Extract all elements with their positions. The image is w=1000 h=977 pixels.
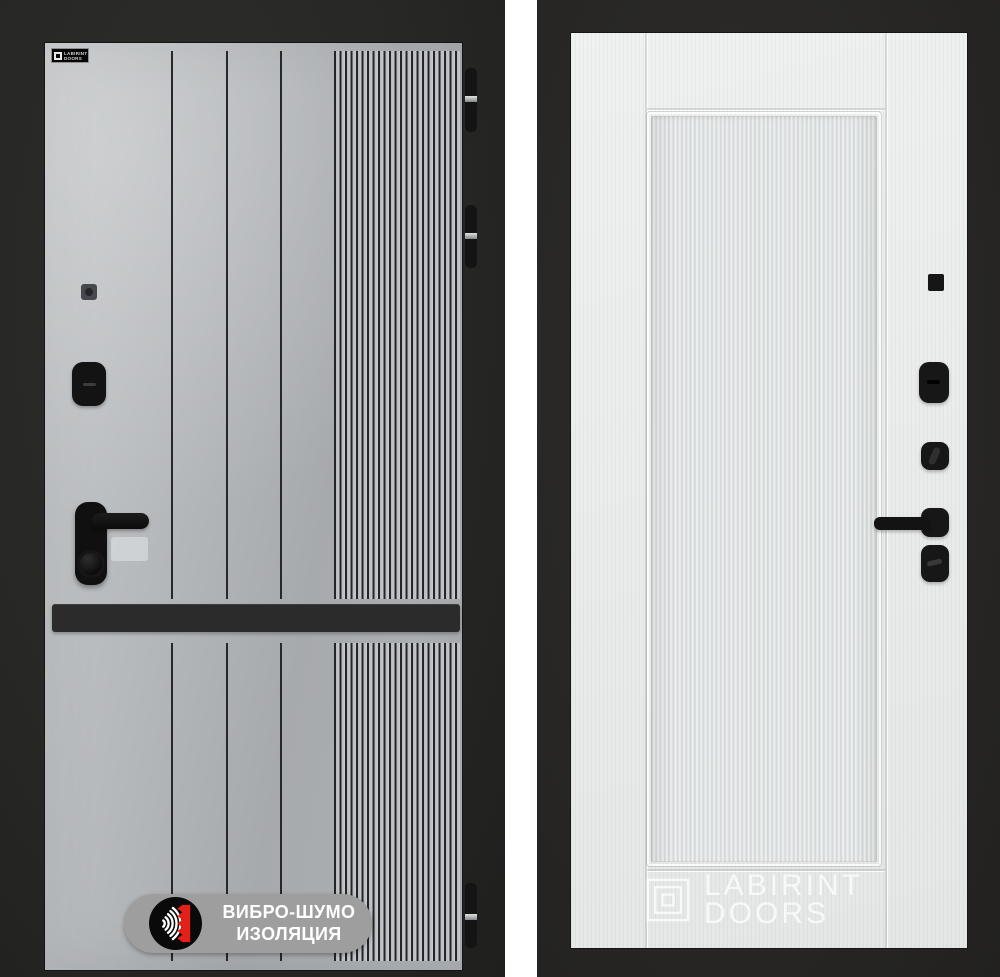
ribbed-center-panel [651,116,877,862]
insulation-badge: ВИБРО-ШУМО ИЗОЛЯЦИЯ [124,894,372,953]
thumb-turn [921,442,949,470]
hinge-band [465,914,477,920]
door-product-image-pair: LABIRINT DOORS [0,0,1000,977]
labirint-logo-icon [54,52,62,60]
door-hinge [465,68,477,132]
groove-line [226,51,228,599]
labirint-maze-logo-icon [646,875,690,925]
peephole [81,284,97,300]
door-interior-photo: LABIRINT DOORS [537,0,1000,977]
door-handle-lever [92,513,149,529]
groove-line [171,51,173,599]
brand-plate-text: LABIRINT DOORS [64,51,87,61]
lock-cylinder-cover [72,362,106,406]
insulation-badge-text: ВИБРО-ШУМО ИЗОЛЯЦИЯ [214,901,364,945]
lock-cover [919,362,949,403]
door-handle-lever [874,517,930,530]
sound-insulation-icon [149,897,202,950]
peephole [928,274,944,291]
badge-line2: ИЗОЛЯЦИЯ [214,923,364,945]
thumb-turn-knob [77,550,105,578]
brand-watermark: LABIRINT DOORS [646,872,863,928]
door-hinge [465,205,477,268]
watermark-text: LABIRINT DOORS [704,872,863,928]
door-interior-panel: LABIRINT DOORS [571,33,967,948]
watermark-line2: DOORS [704,900,863,928]
lower-lock [921,545,949,582]
handle-tag [111,537,148,561]
badge-line1: ВИБРО-ШУМО [214,901,364,923]
accent-strip [52,604,460,632]
door-exterior-photo: LABIRINT DOORS [0,0,505,977]
hinge-band [465,96,477,102]
panel-seam [885,33,887,948]
center-panel-frame [646,111,882,867]
ribbed-section [334,51,460,599]
groove-line [280,51,282,599]
door-exterior-panel: LABIRINT DOORS [45,43,462,970]
sound-wave-icon [149,897,202,950]
hinge-band [465,233,477,239]
door-hinge [465,883,477,948]
brand-plate-line2: DOORS [64,56,87,61]
watermark-line1: LABIRINT [704,872,863,900]
panel-seam [647,108,885,110]
brand-plate: LABIRINT DOORS [51,48,89,63]
